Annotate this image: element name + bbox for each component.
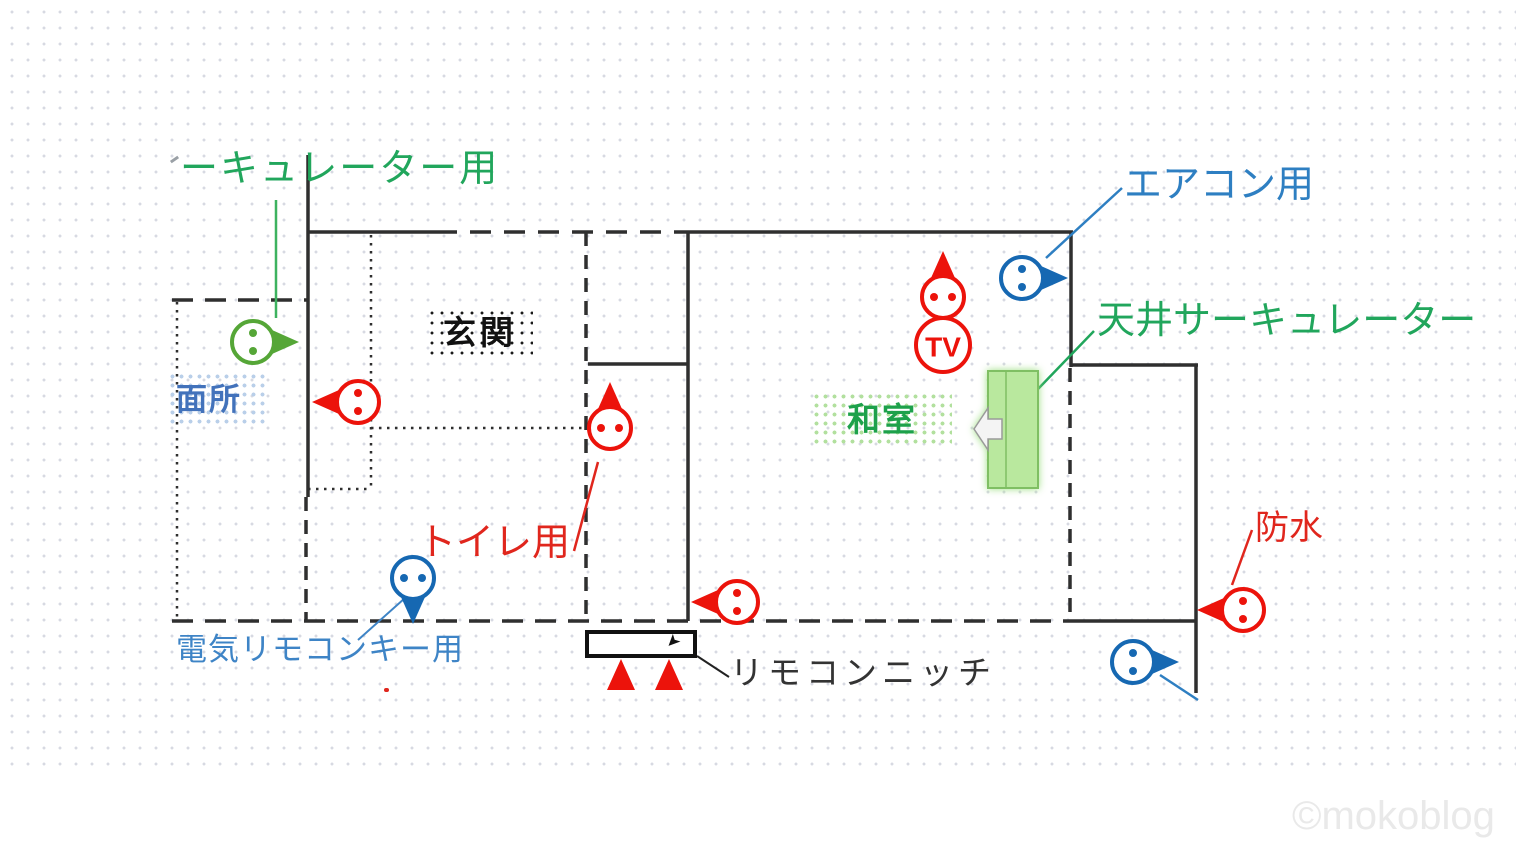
label-aircon: エアコン用 — [1124, 166, 1314, 204]
outlet-pin-dot — [615, 424, 623, 432]
outlet-icon-tv — [922, 251, 964, 318]
outlet-body — [232, 321, 274, 363]
label-japanese-room: 和室 — [812, 403, 952, 436]
outlet-pin-dot — [354, 389, 362, 397]
floor-plan-canvas: TV ーキュレーター用 エアコン用 天井サーキュレーター 玄関 面所 和室 トイ… — [0, 0, 1516, 863]
leader-aircon — [1046, 188, 1122, 258]
label-toilet: トイレ用 — [418, 524, 570, 562]
outlet-pin-dot — [930, 293, 938, 301]
outlet-body — [337, 381, 379, 423]
outlet-pin-dot — [597, 424, 605, 432]
outlet-pin-dot — [418, 574, 426, 582]
leader-lines — [276, 188, 1252, 700]
outlet-pin-dot — [948, 293, 956, 301]
label-ceiling-circulator: 天井サーキュレーター — [1097, 302, 1476, 340]
outlet-body — [589, 407, 631, 449]
label-remote-niche: リモコンニッチ — [730, 656, 996, 689]
red-triangle-icon — [655, 659, 683, 690]
outlet-pin-dot — [1129, 667, 1137, 675]
tv-label: TV — [925, 332, 961, 363]
floor-plan-drawing: TV — [0, 0, 1516, 863]
tv-badge: TV — [916, 318, 970, 372]
leader-ceiling-circulator — [1038, 331, 1094, 389]
label-circulator: ーキュレーター用 — [180, 150, 499, 188]
ceiling-circulator-box — [974, 371, 1038, 488]
outlet-icon-washroom — [312, 381, 379, 423]
outlet-pin-dot — [733, 589, 741, 597]
label-entrance: 玄関 — [427, 316, 533, 349]
outlet-pin-dot — [354, 407, 362, 415]
outlet-icon-electric-remote-key — [392, 557, 434, 624]
outlet-pin-dot — [1239, 615, 1247, 623]
outlet-pin-dot — [733, 607, 741, 615]
outlet-icon-bottom-right — [1112, 641, 1179, 683]
walls — [172, 155, 1198, 693]
outlet-pin-dot — [1129, 649, 1137, 657]
label-washroom: 面所 — [176, 384, 242, 415]
leader-bottom-right — [1160, 675, 1198, 700]
label-waterproof: 防水 — [1255, 511, 1323, 545]
outlet-pin-dot — [249, 329, 257, 337]
outlet-icon-waterproof — [1197, 589, 1264, 631]
outlet-icon-aircon — [1001, 257, 1068, 299]
outlet-icon-hallway — [691, 581, 758, 623]
outlet-body — [716, 581, 758, 623]
outlet-pin-dot — [400, 574, 408, 582]
red-triangle-icon — [607, 659, 635, 690]
outlet-pin-dot — [249, 347, 257, 355]
leader-waterproof — [1232, 530, 1252, 585]
outlet-pin-dot — [1239, 597, 1247, 605]
outlet-pin-dot — [1018, 283, 1026, 291]
red-dot-mark — [384, 688, 389, 692]
label-electric-remote-key: 電気リモコンキー用 — [176, 634, 464, 665]
outlet-body — [922, 276, 964, 318]
leader-niche — [697, 656, 729, 677]
outlet-pin-dot — [1018, 265, 1026, 273]
outlet-body — [1112, 641, 1154, 683]
outlet-body — [1001, 257, 1043, 299]
outlet-icon-toilet — [589, 382, 631, 449]
outlet-icon-circulator — [232, 321, 299, 363]
watermark: ©mokoblog — [1292, 796, 1495, 836]
outlet-body — [1222, 589, 1264, 631]
